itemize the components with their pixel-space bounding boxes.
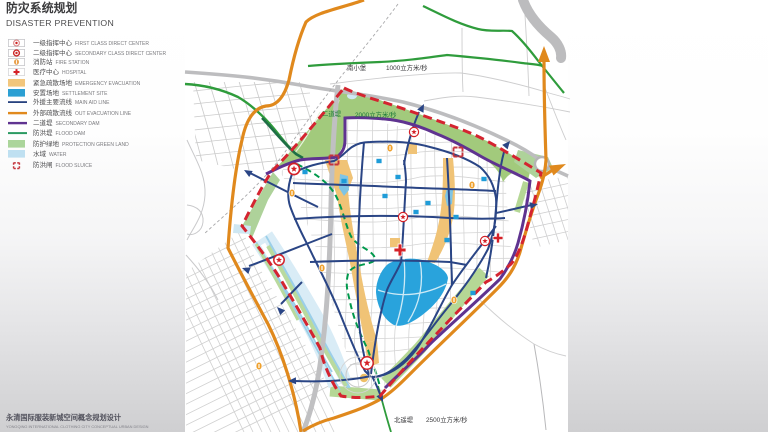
svg-text:2500立方米/秒: 2500立方米/秒 <box>426 415 468 424</box>
svg-text:1000立方米/秒: 1000立方米/秒 <box>386 63 428 72</box>
svg-text:北遥堤: 北遥堤 <box>394 415 414 424</box>
svg-text:2000立方米/秒: 2000立方米/秒 <box>355 110 397 119</box>
svg-text:南小堡: 南小堡 <box>347 63 367 72</box>
svg-text:二道堤: 二道堤 <box>322 109 342 118</box>
